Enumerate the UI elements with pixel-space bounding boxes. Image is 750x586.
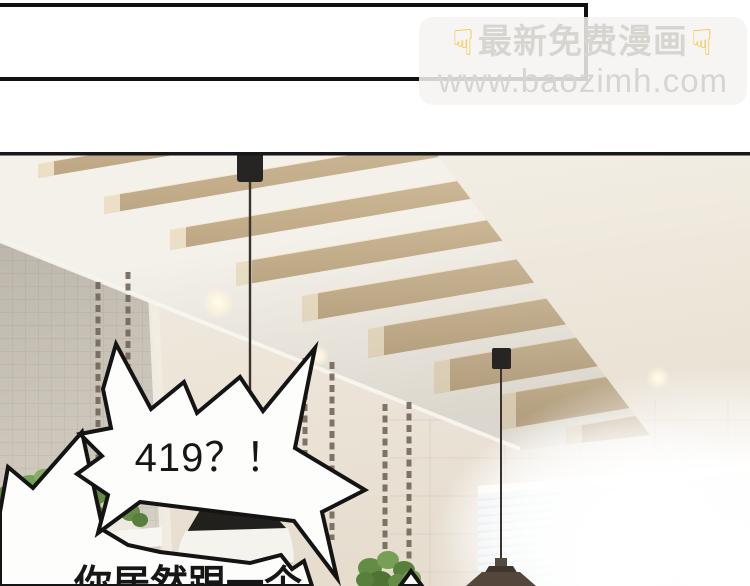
panel-top-border — [0, 152, 750, 156]
lamp-ceiling-mount — [492, 348, 511, 369]
comic-page: 419？！ 你居然跟一个 ☟最新免费漫画☟ www.baozimh.com — [0, 0, 750, 586]
scene-panel — [0, 152, 750, 586]
hand-point-down-icon: ☟ — [449, 22, 478, 63]
hand-point-down-icon: ☟ — [688, 22, 717, 63]
lamp-ceiling-mount — [237, 152, 263, 182]
watermark-title: 最新免费漫画 — [478, 23, 688, 61]
ceiling-light-glow — [202, 287, 234, 319]
watermark-badge: ☟最新免费漫画☟ www.baozimh.com — [419, 17, 747, 105]
scene-wrap — [0, 152, 750, 586]
watermark-site-url: www.baozimh.com — [438, 63, 728, 99]
watermark-title-line: ☟最新免费漫画☟ — [449, 23, 717, 63]
